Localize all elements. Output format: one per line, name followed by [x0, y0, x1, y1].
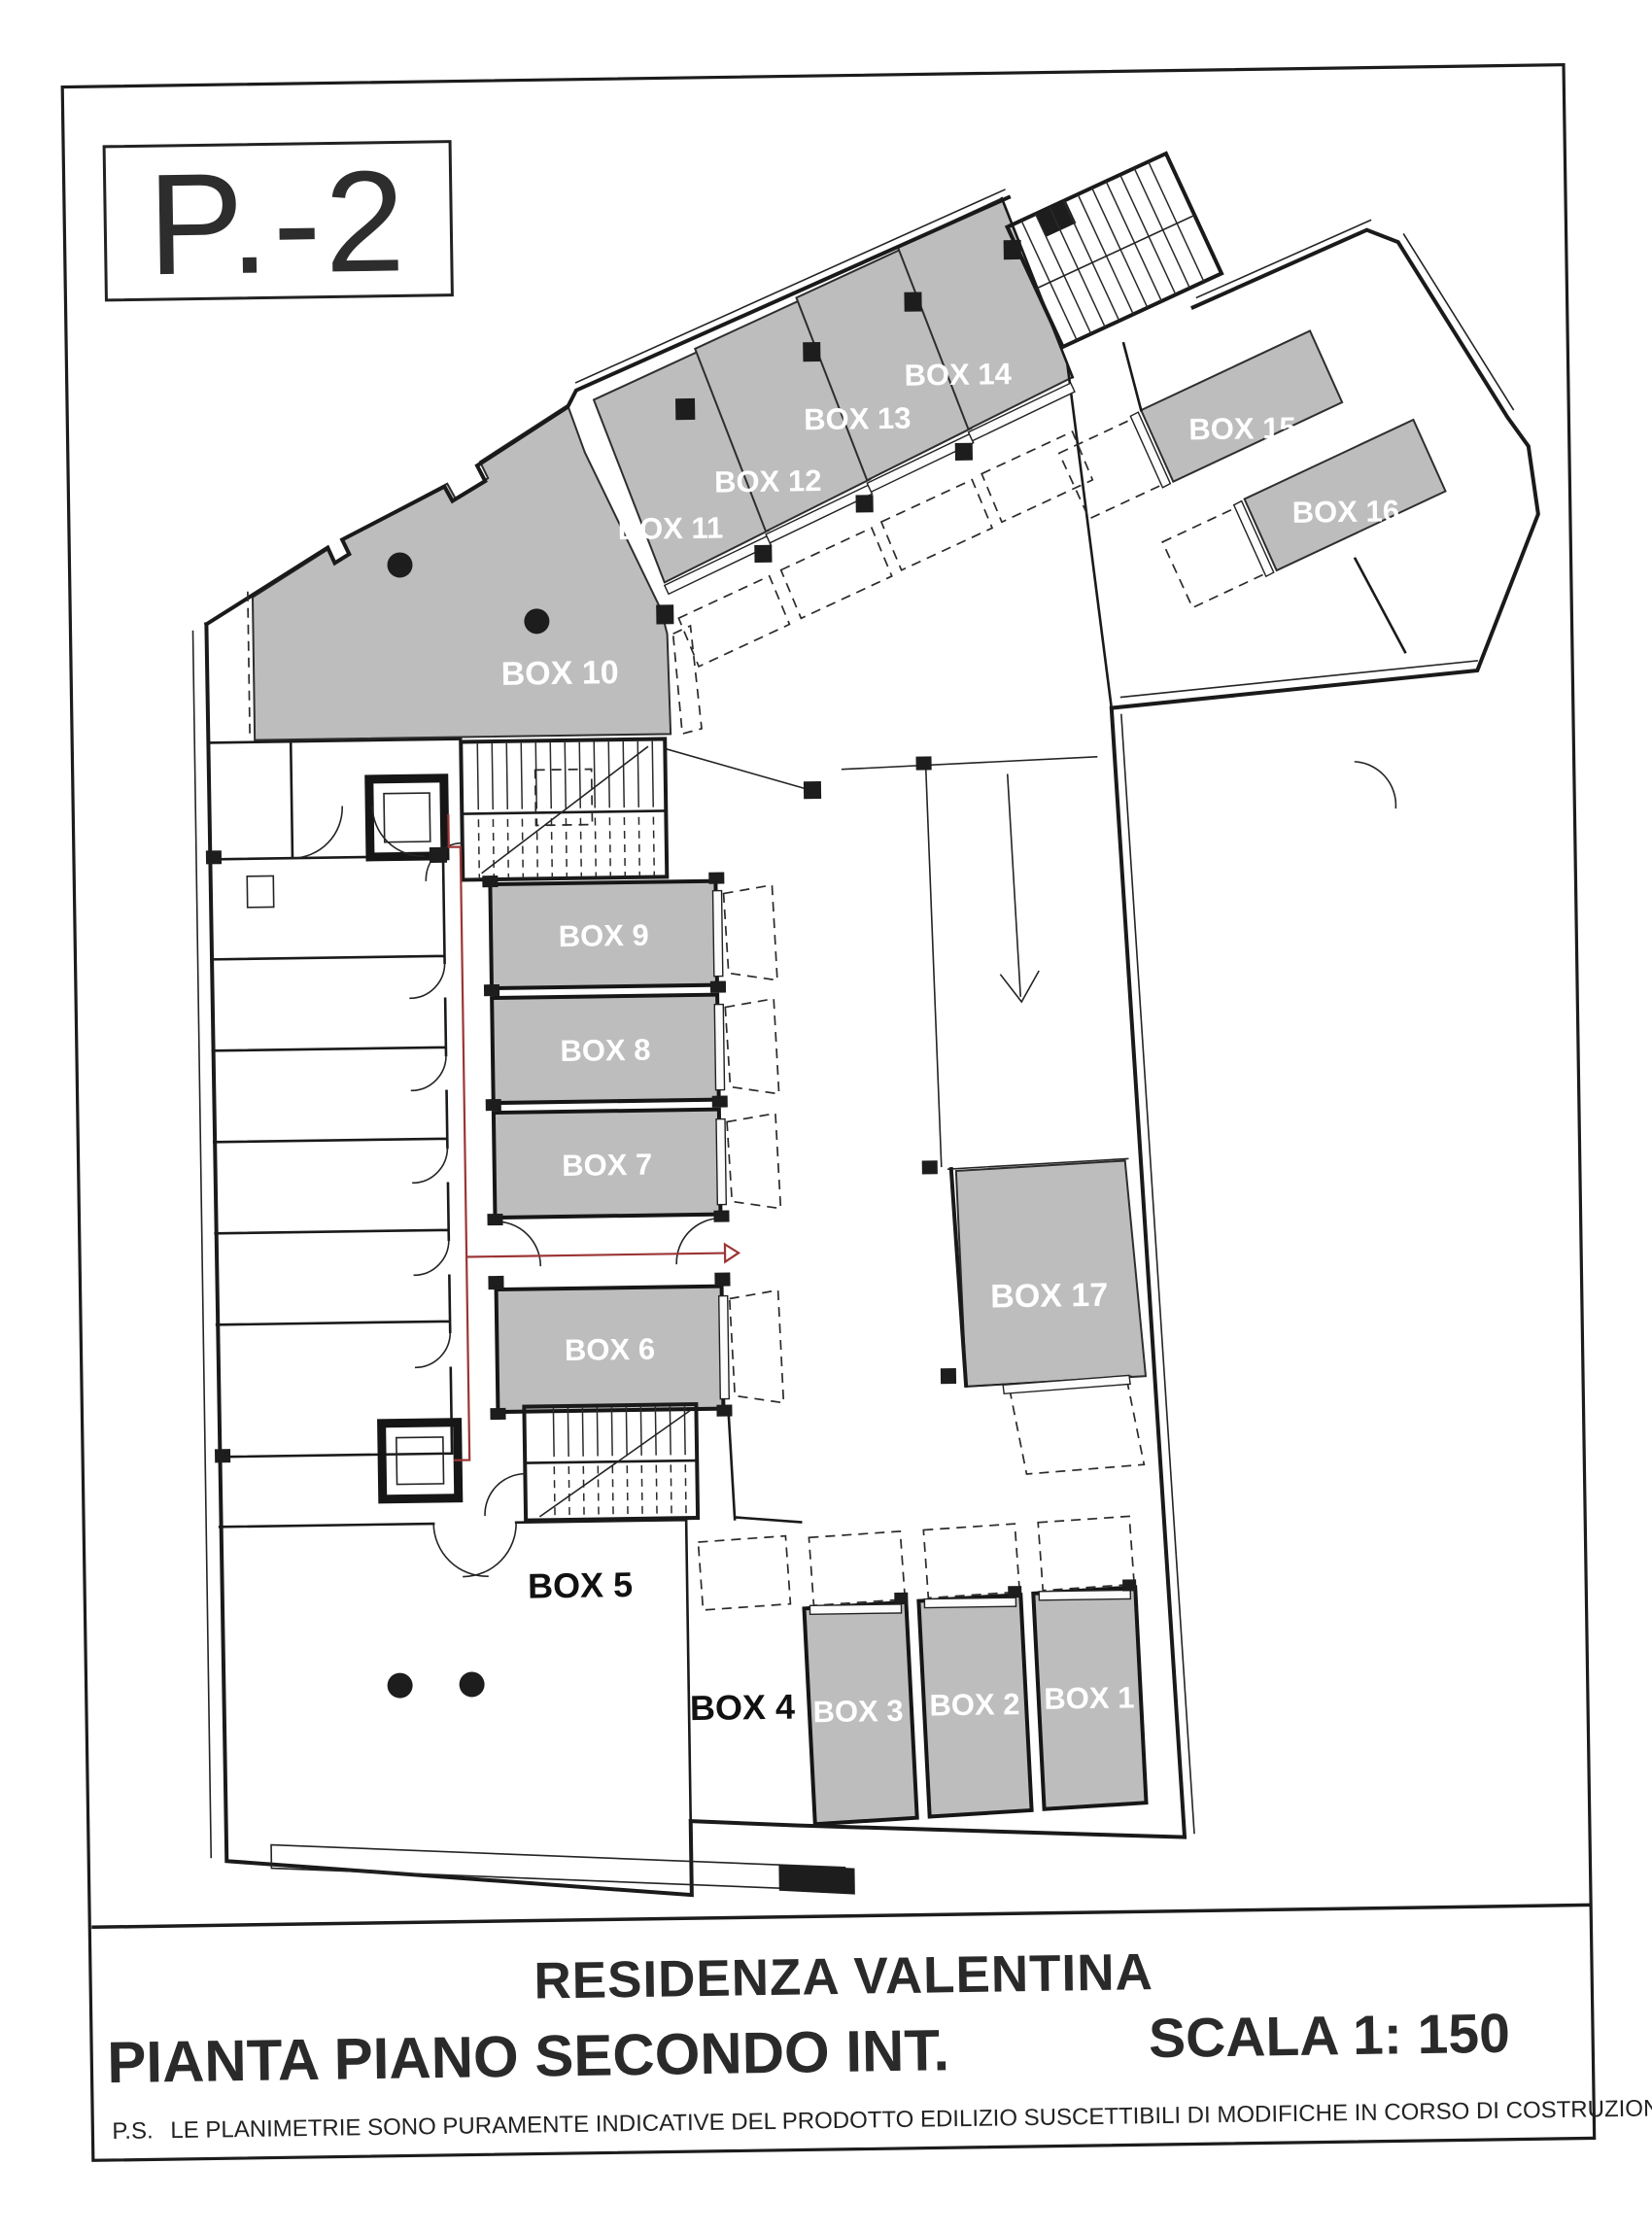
- door-box8: [714, 1005, 724, 1090]
- scale-label: SCALA 1: 150: [1149, 2003, 1511, 2071]
- box-15-label: BOX 15: [1188, 411, 1296, 447]
- box-5-label: BOX 5: [528, 1564, 634, 1606]
- floor-plan-svg: P.-2: [0, 0, 1652, 2233]
- box-12-label: BOX 12: [714, 464, 822, 499]
- scanned-floor-plan-sheet: P.-2: [0, 0, 1652, 2233]
- level-badge: P.-2: [104, 141, 452, 306]
- box-9-label: BOX 9: [558, 918, 649, 953]
- box-2-label: BOX 2: [929, 1687, 1020, 1722]
- box-13-label: BOX 13: [804, 401, 912, 437]
- box-4-label: BOX 4: [690, 1687, 796, 1729]
- level-label: P.-2: [147, 141, 410, 305]
- note-prefix: P.S.: [112, 2117, 154, 2145]
- box-17-area: [956, 1160, 1146, 1387]
- door-box9: [713, 891, 723, 977]
- drawing-title: PIANTA PIANO SECONDO INT.: [107, 2017, 950, 2095]
- box-14-label: BOX 14: [904, 357, 1013, 393]
- box-6-label: BOX 6: [565, 1332, 656, 1367]
- window-pier: [778, 1864, 854, 1896]
- box-11-label: BOX 11: [617, 511, 723, 547]
- box-1-label: BOX 1: [1044, 1680, 1135, 1715]
- box-7-label: BOX 7: [562, 1148, 653, 1183]
- door-box2: [924, 1597, 1015, 1607]
- box-8-label: BOX 8: [560, 1033, 651, 1068]
- box-10-label: BOX 10: [500, 654, 619, 693]
- project-title: RESIDENZA VALENTINA: [533, 1943, 1153, 2010]
- door-box3: [809, 1604, 901, 1614]
- door-box6: [719, 1296, 730, 1399]
- door-box1: [1039, 1590, 1130, 1599]
- box-16-label: BOX 16: [1291, 494, 1399, 530]
- box-17-label: BOX 17: [990, 1277, 1109, 1316]
- sheet: P.-2: [62, 63, 1652, 2160]
- box-3-label: BOX 3: [812, 1694, 904, 1729]
- door-box7: [716, 1119, 726, 1205]
